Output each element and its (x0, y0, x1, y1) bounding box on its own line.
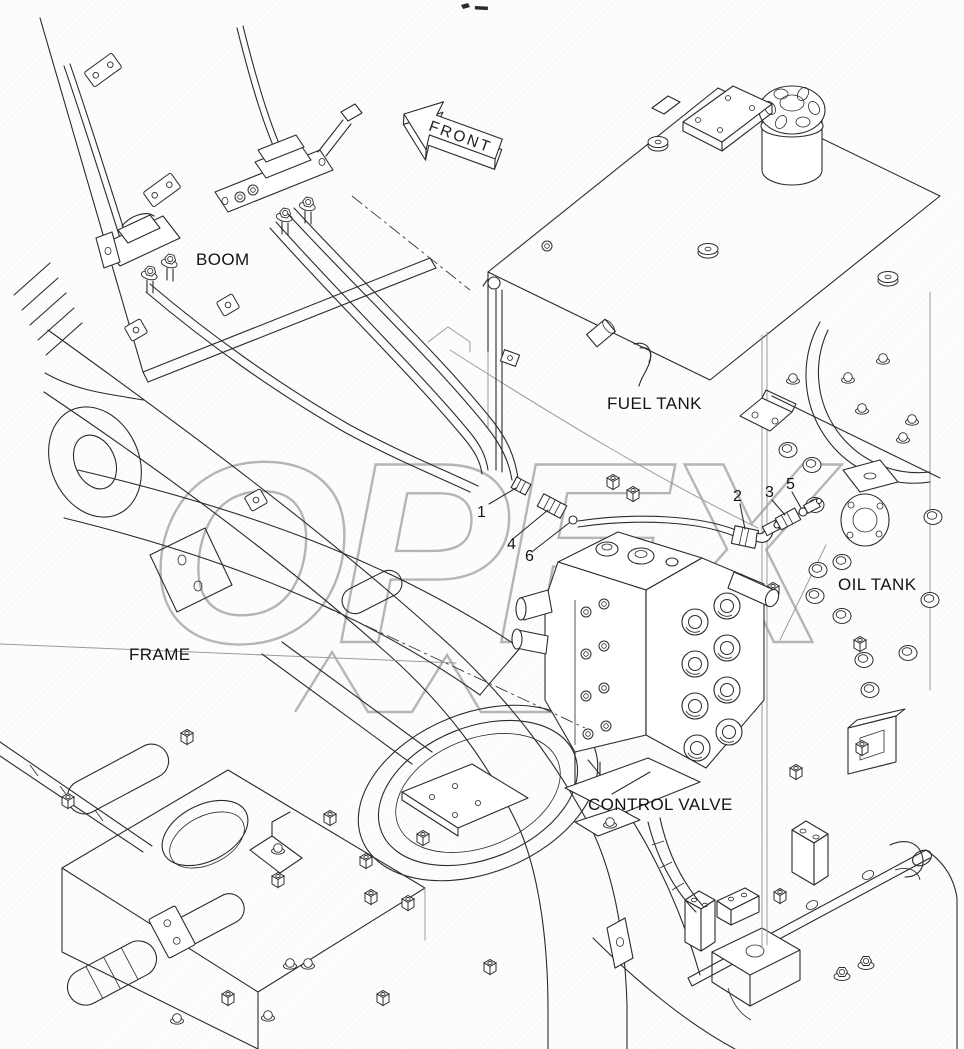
pipe-clamp-left (96, 214, 180, 293)
callout-3: 3 (765, 484, 774, 501)
filter-breather (759, 85, 825, 185)
label-frame: FRAME (129, 645, 191, 664)
flange-boss (841, 460, 898, 546)
standoff-block (685, 891, 715, 951)
ink-smudge-mark (461, 3, 488, 10)
frame-bottom-right (593, 818, 957, 1049)
deck-bolts (171, 844, 315, 1024)
label-control-valve: CONTROL VALVE (588, 795, 733, 814)
standoff-block (792, 821, 828, 885)
callout-6: 6 (525, 548, 534, 565)
u-bracket (848, 709, 905, 774)
control-valve-drawing (512, 532, 781, 836)
standoff-block (717, 888, 759, 925)
callout-2: 2 (733, 488, 742, 505)
label-oil-tank: OIL TANK (838, 575, 917, 594)
centerline (352, 196, 470, 290)
parts-diagram-page: OPEX (0, 0, 964, 1049)
diagram-canvas: OPEX (0, 0, 964, 1049)
callout-4: 4 (507, 536, 516, 553)
callout-1: 1 (477, 504, 486, 521)
label-boom: BOOM (196, 250, 250, 269)
access-plate (652, 86, 772, 151)
label-fuel-tank: FUEL TANK (607, 394, 702, 413)
callout-5: 5 (786, 476, 795, 493)
oring-part-6 (569, 516, 577, 524)
front-direction-arrow: FRONT (392, 91, 511, 184)
